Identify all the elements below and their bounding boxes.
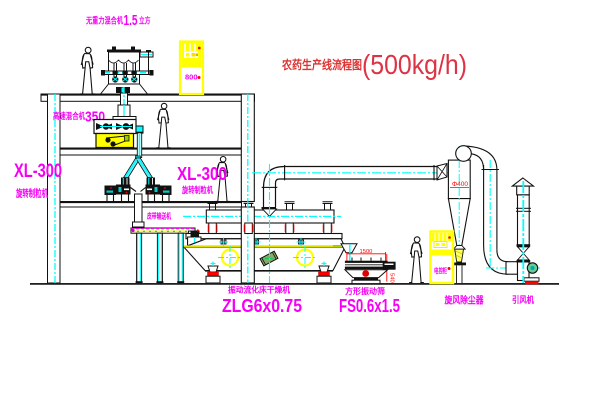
svg-text:1.5: 1.5 [124, 12, 138, 29]
svg-text:旋转制粒机: 旋转制粒机 [181, 185, 213, 195]
svg-text:高速混合机: 高速混合机 [53, 111, 85, 121]
svg-text:ZLG6x0.75: ZLG6x0.75 [222, 296, 302, 316]
svg-text:无重力混合机: 无重力混合机 [85, 16, 123, 26]
svg-text:农药生产线流程图: 农药生产线流程图 [281, 57, 362, 72]
svg-text:800: 800 [185, 73, 198, 82]
svg-text:方形振动筛: 方形振动筛 [345, 286, 385, 296]
svg-text:1500: 1500 [360, 249, 373, 255]
svg-text:FS0.6x1.5: FS0.6x1.5 [339, 296, 400, 316]
svg-text:皮带输送机: 皮带输送机 [146, 211, 171, 221]
svg-text:(500kg/h): (500kg/h) [362, 49, 467, 80]
svg-text:旋风除尘器: 旋风除尘器 [444, 295, 484, 307]
svg-text:引风机: 引风机 [512, 294, 534, 305]
svg-text:XL-300: XL-300 [177, 163, 227, 184]
svg-text:540: 540 [389, 273, 395, 283]
svg-text:振动流化床干燥机: 振动流化床干燥机 [228, 285, 290, 295]
svg-text:立方: 立方 [139, 16, 151, 26]
svg-text:电控柜: 电控柜 [434, 266, 447, 275]
svg-text:XL-300: XL-300 [14, 160, 62, 182]
svg-text:旋转制粒机: 旋转制粒机 [15, 187, 48, 200]
svg-text:Φ400: Φ400 [452, 181, 468, 188]
